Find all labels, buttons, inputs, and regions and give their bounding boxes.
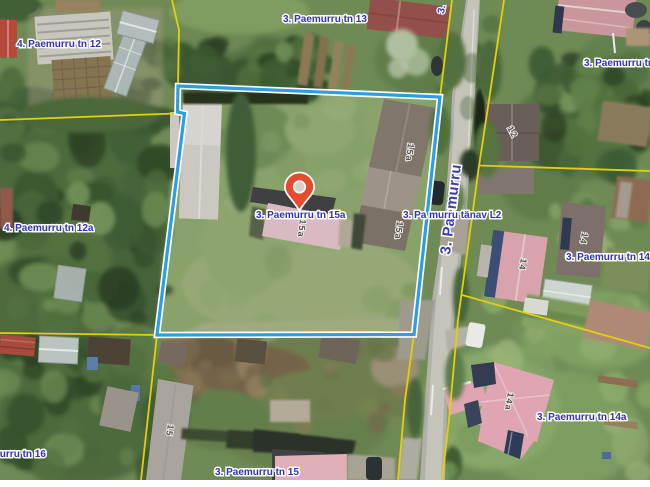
- svg-text:15: 15: [164, 424, 176, 438]
- svg-text:3. Paemurru tn 15: 3. Paemurru tn 15: [215, 467, 299, 478]
- svg-text:3. Paemurru tn 14: 3. Paemurru tn 14: [566, 252, 650, 263]
- svg-text:3. Paemurru tn: 3. Paemurru tn: [584, 58, 650, 69]
- svg-text:3. Pa murru tänav L2: 3. Pa murru tänav L2: [403, 210, 502, 221]
- svg-text:4. Paemurru tn 16: 4. Paemurru tn 16: [0, 449, 46, 460]
- svg-text:4. Paemurru tn 12: 4. Paemurru tn 12: [17, 39, 101, 50]
- svg-text:3. Paemurru tn 13: 3. Paemurru tn 13: [283, 14, 367, 25]
- svg-text:14: 14: [578, 232, 590, 246]
- svg-text:3. Paemurru tn 14a: 3. Paemurru tn 14a: [537, 412, 627, 423]
- svg-text:4. Paemurru tn 12a: 4. Paemurru tn 12a: [4, 223, 94, 234]
- svg-text:14: 14: [517, 258, 529, 272]
- svg-text:3. Paemurru tn 15a: 3. Paemurru tn 15a: [256, 210, 346, 221]
